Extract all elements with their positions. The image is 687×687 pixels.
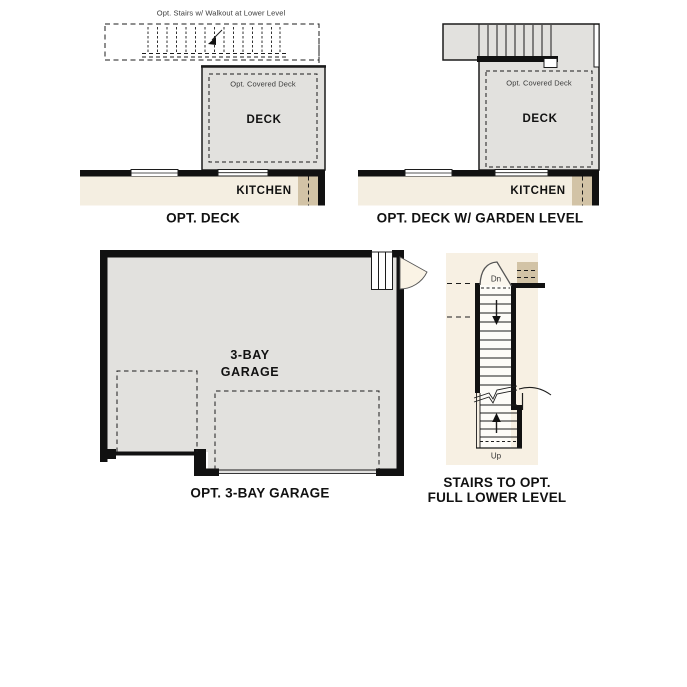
walkout-stairs-note: Opt. Stairs w/ Walkout at Lower Level bbox=[157, 9, 285, 18]
deck-rim-gap bbox=[594, 25, 599, 67]
opt-deck-garden-plan bbox=[358, 24, 599, 206]
wall bbox=[358, 170, 405, 177]
deck-label: DECK bbox=[247, 114, 282, 126]
covered-deck-label: Opt. Covered Deck bbox=[230, 80, 295, 89]
garage-caption: OPT. 3-BAY GARAGE bbox=[190, 486, 329, 501]
covered-deck-label: Opt. Covered Deck bbox=[506, 79, 571, 88]
floorplan-page: Opt. Stairs w/ Walkout at Lower Level Op… bbox=[0, 0, 687, 687]
floorplan-drawing bbox=[0, 0, 687, 687]
wall bbox=[548, 170, 599, 177]
kitchen-label: KITCHEN bbox=[236, 185, 291, 197]
wall bbox=[511, 283, 545, 288]
stairwell-left-wall bbox=[475, 283, 480, 393]
stairwell-interior bbox=[480, 284, 511, 448]
garage-top-wall bbox=[100, 250, 372, 258]
cabinet-block bbox=[517, 262, 538, 283]
deck-label: DECK bbox=[523, 113, 558, 125]
stairs-down-label: Dn bbox=[491, 275, 501, 284]
stairs-direction-arrowhead bbox=[208, 37, 216, 45]
entry-door-frame bbox=[372, 252, 393, 290]
stairs-caption: STAIRS TO OPT. FULL LOWER LEVEL bbox=[428, 475, 567, 505]
deck-garden-caption: OPT. DECK W/ GARDEN LEVEL bbox=[377, 211, 584, 226]
kitchen-label: KITCHEN bbox=[510, 185, 565, 197]
garage-left-wall bbox=[100, 250, 108, 462]
wall bbox=[452, 170, 495, 177]
deck-garden-area bbox=[443, 24, 599, 170]
opt-deck-plan bbox=[80, 24, 326, 206]
walkout-stairs-stringer bbox=[142, 54, 287, 58]
opt-deck-caption: OPT. DECK bbox=[166, 211, 240, 226]
garage-door-jamb bbox=[204, 469, 219, 477]
left-bay-bottom-wall bbox=[107, 452, 197, 456]
wall bbox=[318, 170, 325, 206]
door-swing-fan bbox=[400, 257, 427, 289]
stairs-caption-line1: STAIRS TO OPT. bbox=[428, 475, 567, 490]
garage-room-label-line2: GARAGE bbox=[221, 364, 279, 381]
garage-room-label: 3-BAY GARAGE bbox=[221, 347, 279, 381]
stairs-direction-arrow bbox=[212, 30, 222, 40]
stair-stoop bbox=[544, 59, 557, 68]
garage-room-label-line1: 3-BAY bbox=[221, 347, 279, 364]
stairs-caption-line2: FULL LOWER LEVEL bbox=[428, 490, 567, 505]
wall bbox=[80, 170, 131, 177]
stairs-up-label: Up bbox=[491, 452, 501, 461]
garage-door-jamb bbox=[376, 469, 404, 477]
stairwell-right-wall-lower bbox=[517, 409, 522, 448]
wall bbox=[592, 170, 599, 206]
lower-level-stairs-plan bbox=[446, 253, 551, 465]
